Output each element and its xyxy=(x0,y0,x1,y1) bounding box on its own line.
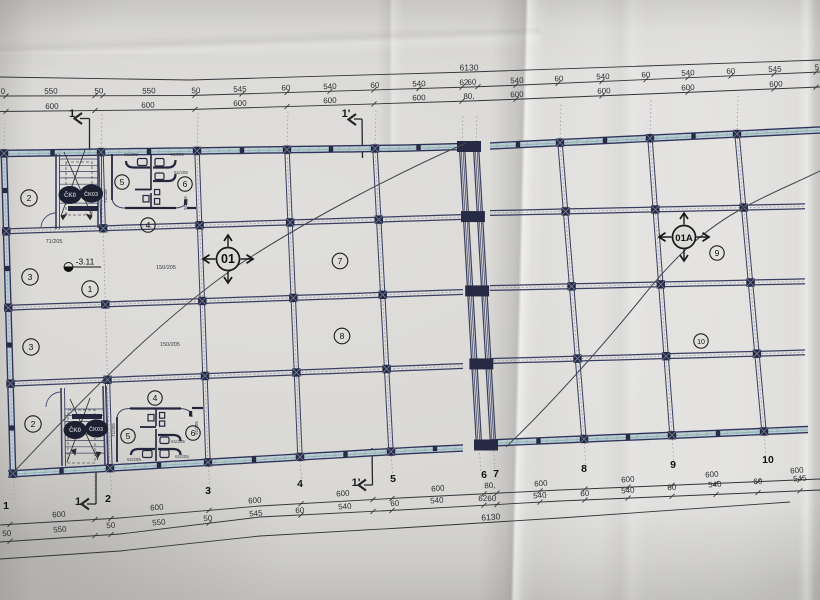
svg-text:ČK03: ČK03 xyxy=(89,426,103,433)
svg-text:ČK0: ČK0 xyxy=(64,192,77,199)
svg-text:545: 545 xyxy=(793,474,807,484)
svg-text:01: 01 xyxy=(221,252,235,266)
svg-text:50: 50 xyxy=(203,514,213,524)
svg-text:50: 50 xyxy=(191,86,201,95)
svg-text:2: 2 xyxy=(105,493,111,505)
svg-text:1: 1 xyxy=(3,500,9,512)
svg-text:-3.11: -3.11 xyxy=(76,257,95,267)
svg-text:545: 545 xyxy=(768,65,782,74)
svg-text:10: 10 xyxy=(697,339,705,346)
svg-text:3: 3 xyxy=(205,485,211,497)
svg-text:60: 60 xyxy=(281,83,291,92)
svg-text:6: 6 xyxy=(481,469,487,481)
svg-text:71/205: 71/205 xyxy=(103,189,108,203)
svg-text:540: 540 xyxy=(708,480,722,490)
svg-text:600: 600 xyxy=(323,96,337,105)
svg-text:80,: 80, xyxy=(484,481,496,491)
svg-text:01A: 01A xyxy=(675,233,693,244)
svg-text:1': 1' xyxy=(342,108,351,120)
svg-text:2: 2 xyxy=(31,419,36,429)
svg-text:550: 550 xyxy=(152,518,166,528)
svg-text:600: 600 xyxy=(597,86,611,95)
svg-text:600: 600 xyxy=(52,510,66,520)
svg-text:600: 600 xyxy=(705,470,719,480)
svg-text:540: 540 xyxy=(681,68,695,77)
svg-text:545: 545 xyxy=(249,509,263,519)
svg-text:9: 9 xyxy=(715,248,720,258)
svg-text:61/205: 61/205 xyxy=(175,454,189,459)
svg-text:5: 5 xyxy=(390,473,396,485)
svg-text:1: 1 xyxy=(88,284,93,294)
svg-text:540: 540 xyxy=(430,496,444,506)
svg-text:60: 60 xyxy=(580,489,590,499)
svg-text:8: 8 xyxy=(581,463,587,475)
svg-text:3: 3 xyxy=(28,272,33,282)
svg-text:540: 540 xyxy=(412,79,426,88)
svg-text:600: 600 xyxy=(412,93,426,102)
svg-text:2: 2 xyxy=(27,193,32,203)
svg-text:60: 60 xyxy=(487,494,497,504)
svg-text:50: 50 xyxy=(2,529,12,539)
svg-text:600: 600 xyxy=(534,479,548,489)
svg-text:91/205: 91/205 xyxy=(183,196,188,210)
svg-text:60: 60 xyxy=(667,483,677,493)
svg-text:7: 7 xyxy=(338,256,343,266)
svg-text:60: 60 xyxy=(726,67,736,76)
svg-text:600: 600 xyxy=(681,83,695,92)
svg-text:60: 60 xyxy=(753,477,763,487)
svg-text:4: 4 xyxy=(146,220,151,230)
svg-text:60: 60 xyxy=(370,81,380,90)
svg-text:150/205: 150/205 xyxy=(156,265,176,271)
svg-text:0: 0 xyxy=(1,87,6,96)
svg-text:10: 10 xyxy=(762,454,774,466)
svg-text:4: 4 xyxy=(297,478,303,490)
svg-text:61/205: 61/205 xyxy=(124,152,138,157)
svg-text:6130: 6130 xyxy=(460,63,479,73)
svg-text:80,: 80, xyxy=(463,92,474,101)
svg-text:600: 600 xyxy=(769,79,783,88)
svg-text:60: 60 xyxy=(641,70,651,79)
svg-text:600: 600 xyxy=(621,475,635,485)
svg-text:1: 1 xyxy=(75,496,81,508)
svg-text:50: 50 xyxy=(106,521,116,531)
svg-text:150/205: 150/205 xyxy=(160,342,180,348)
svg-text:71/205: 71/205 xyxy=(46,239,63,245)
svg-text:3: 3 xyxy=(29,342,34,352)
svg-text:540: 540 xyxy=(323,82,337,91)
svg-text:600: 600 xyxy=(233,99,247,108)
svg-text:600: 600 xyxy=(141,100,155,109)
svg-text:9: 9 xyxy=(670,459,676,471)
svg-text:550: 550 xyxy=(53,525,67,535)
svg-text:6: 6 xyxy=(191,428,196,438)
svg-text:8: 8 xyxy=(340,331,345,341)
svg-text:60: 60 xyxy=(390,499,400,509)
svg-text:600: 600 xyxy=(431,484,445,494)
svg-text:6: 6 xyxy=(183,179,188,189)
svg-text:545: 545 xyxy=(233,85,247,94)
svg-text:1': 1' xyxy=(352,477,361,489)
svg-text:60: 60 xyxy=(295,506,305,516)
svg-text:600: 600 xyxy=(45,102,59,111)
svg-text:61/205: 61/205 xyxy=(171,439,185,444)
svg-text:ČK0: ČK0 xyxy=(69,427,82,434)
svg-text:600: 600 xyxy=(150,503,164,513)
svg-text:5: 5 xyxy=(120,177,125,187)
svg-text:61/205: 61/205 xyxy=(127,457,141,462)
svg-text:540: 540 xyxy=(596,72,610,81)
svg-text:61/205: 61/205 xyxy=(170,152,184,157)
svg-text:540: 540 xyxy=(338,502,352,512)
svg-text:5: 5 xyxy=(815,63,820,72)
svg-text:7: 7 xyxy=(493,468,499,480)
svg-text:540: 540 xyxy=(621,486,635,496)
svg-text:6130: 6130 xyxy=(481,511,501,522)
svg-text:71/205: 71/205 xyxy=(111,423,116,437)
svg-text:ČK03: ČK03 xyxy=(84,191,98,198)
svg-text:60: 60 xyxy=(467,78,477,87)
svg-text:60: 60 xyxy=(554,74,564,83)
svg-text:600: 600 xyxy=(336,489,350,499)
svg-text:550: 550 xyxy=(142,86,156,95)
svg-text:600: 600 xyxy=(510,90,524,99)
svg-text:540: 540 xyxy=(533,491,547,501)
svg-text:61/205: 61/205 xyxy=(174,170,188,175)
svg-text:540: 540 xyxy=(510,76,524,85)
svg-text:550: 550 xyxy=(44,86,58,95)
svg-text:50: 50 xyxy=(94,86,104,95)
svg-text:4: 4 xyxy=(153,393,158,403)
svg-text:5: 5 xyxy=(126,431,131,441)
svg-text:1: 1 xyxy=(69,108,75,120)
svg-text:600: 600 xyxy=(248,496,262,506)
